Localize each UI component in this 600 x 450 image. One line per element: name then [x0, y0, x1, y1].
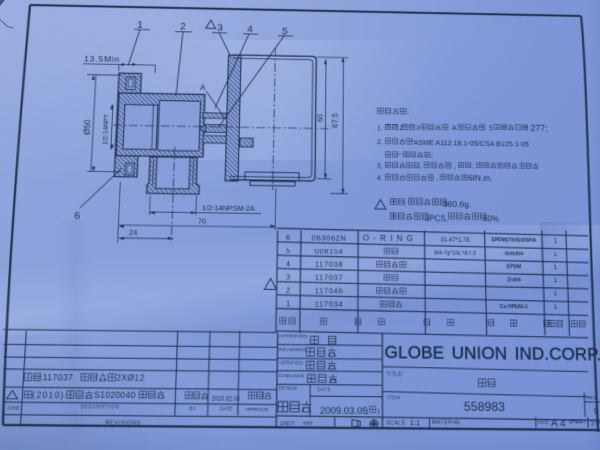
- svg-text:O-RING: O-RING: [363, 233, 417, 243]
- svg-text:1:1: 1:1: [410, 419, 420, 427]
- svg-text::: :: [404, 201, 406, 208]
- svg-text:"ASME A112.18.1-05/CSA B125.1-: "ASME A112.18.1-05/CSA B125.1-05: [411, 139, 529, 148]
- svg-text:2010.02.04: 2010.02.04: [211, 396, 240, 403]
- svg-text:6: 6: [286, 234, 290, 242]
- svg-text::: :: [407, 109, 409, 116]
- svg-text:,: ,: [454, 163, 456, 170]
- svg-text:EPDM(70±5)60SHA: EPDM(70±5)60SHA: [492, 237, 537, 244]
- svg-text:2009.03.05: 2009.03.05: [320, 405, 368, 417]
- svg-text:50%: 50%: [483, 214, 499, 224]
- svg-text:A: A: [200, 83, 206, 92]
- svg-text:,: ,: [420, 163, 422, 170]
- svg-text:REVIEWED: REVIEWED: [279, 346, 307, 352]
- svg-text:1: 1: [554, 290, 558, 297]
- svg-text:1: 1: [137, 20, 144, 31]
- svg-text:13.5Min: 13.5Min: [84, 55, 120, 65]
- svg-text:Cu HPb59-1: Cu HPb59-1: [500, 304, 529, 311]
- svg-text:DATE: DATE: [317, 387, 331, 393]
- svg-text:): ): [378, 407, 380, 415]
- svg-text:;: ;: [472, 163, 474, 170]
- svg-text:2: 2: [399, 125, 403, 132]
- svg-text:EPDM: EPDM: [507, 264, 522, 271]
- svg-text:ZONE: ZONE: [7, 405, 20, 411]
- svg-text:4.: 4.: [377, 175, 383, 182]
- svg-text:1: 1: [554, 277, 558, 284]
- svg-text:3: 3: [286, 273, 290, 282]
- svg-text:,: ,: [436, 175, 438, 182]
- svg-text:24: 24: [129, 229, 138, 238]
- svg-text:360.6g.: 360.6g.: [443, 200, 471, 210]
- svg-text:117037: 117037: [315, 274, 343, 283]
- svg-text:3PCS,: 3PCS,: [425, 214, 448, 224]
- svg-text:3.: 3.: [377, 163, 383, 170]
- svg-text:008154: 008154: [315, 247, 344, 256]
- svg-text:CHECKED: CHECKED: [279, 373, 304, 379]
- svg-text:A: A: [452, 125, 457, 132]
- svg-text:TITLE:: TITLE:: [386, 371, 404, 378]
- svg-text:UNIT:: UNIT:: [280, 420, 297, 427]
- svg-text:4: 4: [247, 24, 253, 35]
- svg-text:1/2-14NPSM-2A: 1/2-14NPSM-2A: [202, 205, 255, 213]
- svg-text:70: 70: [198, 217, 207, 225]
- svg-text:APPROVE: APPROVE: [245, 406, 268, 412]
- svg-text:117038: 117038: [315, 260, 343, 269]
- svg-text:277;: 277;: [530, 123, 547, 133]
- svg-text:5: 5: [286, 247, 290, 255]
- svg-text:5: 5: [489, 125, 493, 132]
- svg-text:1.: 1.: [377, 125, 383, 132]
- svg-text:SUS304: SUS304: [505, 251, 524, 258]
- svg-text:117034: 117034: [315, 300, 344, 309]
- svg-text:mm: mm: [303, 420, 312, 427]
- svg-text:OF: OF: [594, 420, 600, 427]
- svg-text:67.5: 67.5: [330, 113, 339, 128]
- svg-text:(2010): (2010): [32, 390, 65, 400]
- svg-text:;: ;: [431, 152, 433, 159]
- svg-text:1/2-14NPT: 1/2-14NPT: [102, 114, 111, 145]
- svg-text:0: 0: [594, 406, 599, 416]
- svg-text:APPROVED: APPROVED: [279, 333, 308, 339]
- svg-text:DATE: DATE: [220, 406, 233, 412]
- svg-text:1: 1: [553, 304, 557, 312]
- svg-text:M4-7g*10L*Φ7.3: M4-7g*10L*Φ7.3: [434, 250, 476, 257]
- svg-text:DESCRIPTION: DESCRIPTION: [81, 403, 120, 409]
- svg-text:1: 1: [553, 251, 557, 258]
- svg-text:Ø50: Ø50: [82, 119, 92, 135]
- svg-text:": ": [399, 152, 402, 159]
- svg-text:REV: REV: [587, 395, 597, 401]
- svg-text:6IN.m.: 6IN.m.: [468, 173, 493, 183]
- svg-text:MATERIAL: MATERIAL: [432, 420, 462, 427]
- svg-text:31.47*1.78: 31.47*1.78: [440, 237, 469, 244]
- svg-text:5: 5: [282, 26, 288, 37]
- svg-text:063062N: 063062N: [312, 234, 347, 243]
- svg-text:117037: 117037: [42, 373, 73, 383]
- svg-text:DESIGN: DESIGN: [279, 385, 297, 391]
- svg-text:SCALE: SCALE: [386, 420, 406, 427]
- svg-text:2: 2: [180, 22, 187, 33]
- svg-text:1: 1: [286, 300, 290, 309]
- svg-text:2: 2: [286, 286, 290, 295]
- svg-text:VERIFIED: VERIFIED: [279, 360, 303, 366]
- svg-text:BY: BY: [189, 405, 196, 411]
- svg-text:2.: 2.: [377, 139, 383, 146]
- svg-text:1: 1: [554, 237, 558, 244]
- svg-text:3: 3: [416, 125, 420, 132]
- svg-text:558983: 558983: [464, 401, 505, 415]
- svg-text:SHEET: SHEET: [568, 419, 586, 426]
- svg-text:(: (: [366, 407, 369, 415]
- svg-text:S1020040: S1020040: [94, 390, 136, 400]
- svg-text:A 4: A 4: [551, 418, 567, 430]
- svg-text:117046: 117046: [315, 287, 344, 296]
- svg-text:ITEM: ITEM: [387, 395, 400, 401]
- svg-text:2XØ12: 2XØ12: [116, 373, 145, 383]
- svg-text:GLOBE UNION IND.CORP.: GLOBE UNION IND.CORP.: [385, 343, 600, 365]
- svg-text:3: 3: [217, 23, 223, 34]
- svg-text:SIZE: SIZE: [537, 419, 550, 426]
- svg-text:ZnAl4: ZnAl4: [507, 277, 521, 284]
- svg-text:4: 4: [286, 260, 290, 269]
- svg-text:REVISIONS: REVISIONS: [105, 420, 141, 427]
- svg-text:6: 6: [74, 211, 81, 223]
- svg-text:1: 1: [554, 264, 558, 271]
- svg-text:60: 60: [316, 114, 324, 122]
